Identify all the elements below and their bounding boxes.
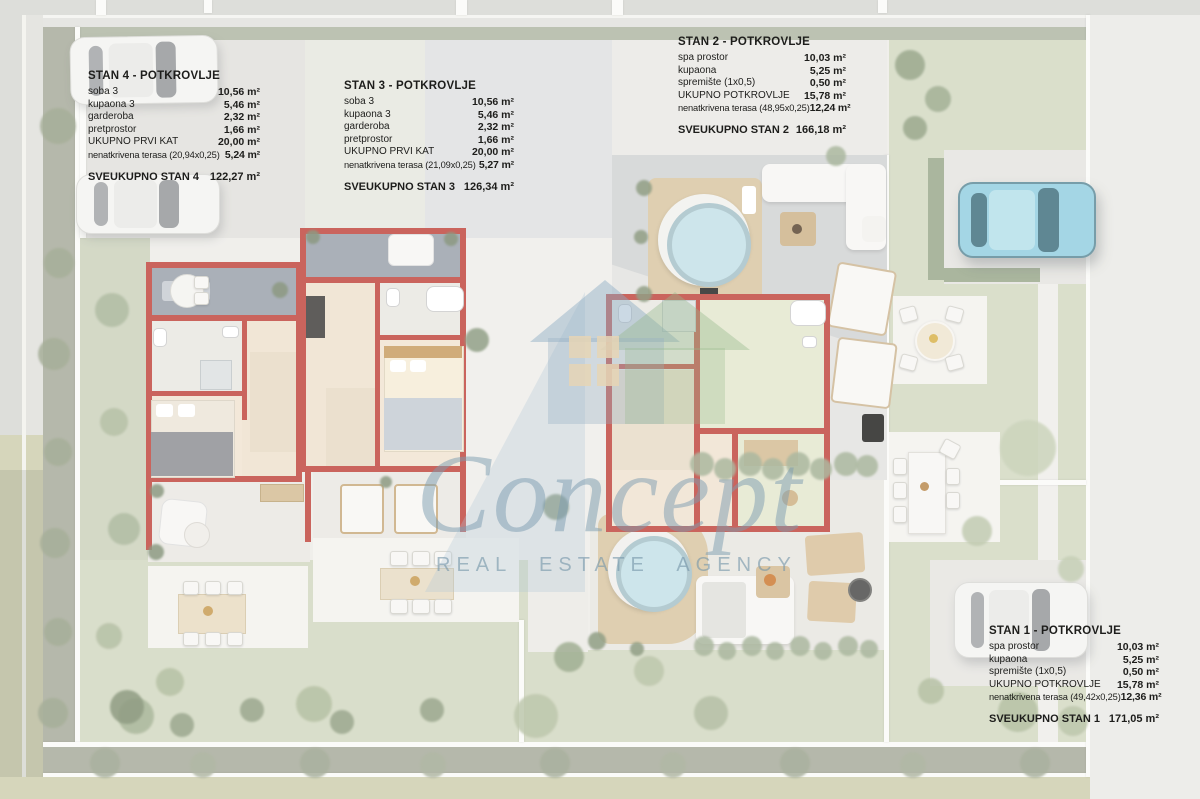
road-left xyxy=(0,15,22,435)
roof-terrace-stan3 xyxy=(300,228,466,282)
table-centerpiece xyxy=(929,334,938,343)
bed-pillow xyxy=(390,360,406,372)
tree xyxy=(40,108,76,144)
fence-post xyxy=(204,0,212,13)
chair xyxy=(434,599,452,614)
tree xyxy=(903,116,927,140)
area-row: kupaona5,25 m² xyxy=(989,654,1159,667)
logo-window xyxy=(569,336,591,358)
staircase-stan4 xyxy=(250,352,302,452)
grass-outside-bottom xyxy=(0,777,1090,799)
sofa-cushions xyxy=(702,582,746,638)
area-total-row: SVEUKUPNO STAN 2166,18 m² xyxy=(678,124,846,136)
tree xyxy=(780,748,810,778)
toilet xyxy=(153,328,167,347)
area-row: nenatkrivena terasa (21,09x0,25)5,27 m² xyxy=(344,159,514,172)
shower xyxy=(200,360,232,390)
hedge-parking-h xyxy=(944,268,1040,282)
tree xyxy=(554,642,584,672)
road-top xyxy=(0,0,1200,15)
area-row: spa prostor10,03 m² xyxy=(678,52,846,65)
bed-blanket xyxy=(151,432,233,476)
chair xyxy=(194,292,209,305)
table-centerpiece xyxy=(920,482,929,491)
tree xyxy=(240,698,264,722)
tree xyxy=(895,50,925,80)
area-row: UKUPNO POTKROVLJE15,78 m² xyxy=(678,90,846,103)
tree xyxy=(742,636,762,656)
tree xyxy=(108,513,140,545)
area-total-row: SVEUKUPNO STAN 1171,05 m² xyxy=(989,713,1159,725)
tree xyxy=(465,328,489,352)
tree xyxy=(96,623,122,649)
unit-table-stan3: STAN 3 - POTKROVLJE soba 310,56 m² kupao… xyxy=(344,80,514,193)
chair xyxy=(194,276,209,289)
area-row: spremište (1x0,5)0,50 m² xyxy=(678,77,846,90)
tree xyxy=(540,748,570,778)
watermark-brand: Concept xyxy=(416,436,803,554)
bed-headboard xyxy=(384,346,462,358)
watermark-subtitle: REAL ESTATE AGENCY xyxy=(436,554,797,577)
tree xyxy=(838,636,858,656)
area-row: UKUPNO PRVI KAT20,00 m² xyxy=(344,146,514,159)
area-row: UKUPNO POTKROVLJE15,78 m² xyxy=(989,679,1159,692)
area-row: pretprostor1,66 m² xyxy=(344,134,514,147)
tree xyxy=(100,408,128,436)
tree xyxy=(190,752,216,778)
tree xyxy=(962,516,992,546)
tree xyxy=(44,618,72,646)
area-row: pretprostor1,66 m² xyxy=(88,124,260,137)
table-centerpiece xyxy=(203,606,213,616)
tree xyxy=(90,748,120,778)
fire-bowl xyxy=(848,578,872,602)
tree xyxy=(148,544,164,560)
logo-body-right xyxy=(625,348,725,424)
area-row: nenatkrivena terasa (20,94x0,25)5,24 m² xyxy=(88,149,260,162)
closet xyxy=(303,296,325,338)
tree xyxy=(444,232,458,246)
sink xyxy=(222,326,239,338)
tree xyxy=(420,698,444,722)
tree xyxy=(826,146,846,166)
tree xyxy=(660,752,686,778)
chair xyxy=(893,506,907,523)
chair xyxy=(412,599,430,614)
tree xyxy=(44,438,72,466)
tree xyxy=(38,698,68,728)
tree xyxy=(790,636,810,656)
unit-table-stan1: STAN 1 - POTKROVLJE spa prostor10,03 m² … xyxy=(989,625,1159,725)
concept-house-logo xyxy=(505,262,785,442)
bathtub xyxy=(790,300,826,326)
tree xyxy=(856,455,878,477)
fence-post xyxy=(612,0,623,15)
tree xyxy=(636,180,652,196)
chair xyxy=(946,468,960,485)
tree xyxy=(1000,420,1056,476)
chair xyxy=(183,581,199,595)
chair xyxy=(205,632,221,646)
towel xyxy=(742,186,756,214)
tree xyxy=(110,690,144,724)
chair xyxy=(390,551,408,566)
logo-window xyxy=(569,364,591,386)
tree xyxy=(694,696,728,730)
tree xyxy=(296,686,332,722)
pouf xyxy=(862,216,886,242)
area-row: nenatkrivena terasa (48,95x0,25)12,24 m² xyxy=(678,102,846,115)
bed-pillow xyxy=(410,360,426,372)
tree xyxy=(718,642,736,660)
bed-pillow xyxy=(156,404,173,417)
tree xyxy=(40,528,70,558)
tree xyxy=(860,640,878,658)
area-row: nenatkrivena terasa (49,42x0,25)12,36 m² xyxy=(989,691,1159,704)
wooden-bench xyxy=(260,484,304,502)
unit-title: STAN 3 - POTKROVLJE xyxy=(344,80,514,92)
table-centerpiece xyxy=(410,576,420,586)
tree xyxy=(420,752,446,778)
area-row: garderoba2,32 m² xyxy=(344,121,514,134)
area-row: soba 310,56 m² xyxy=(88,86,260,99)
unit-table-stan4: STAN 4 - POTKROVLJE soba 310,56 m² kupao… xyxy=(88,70,260,183)
tree xyxy=(330,710,354,734)
tree xyxy=(1020,748,1050,778)
tree xyxy=(1058,556,1084,582)
area-row: kupaona 35,46 m² xyxy=(344,109,514,122)
unit-table-stan2: STAN 2 - POTKROVLJE spa prostor10,03 m² … xyxy=(678,36,846,136)
tree xyxy=(514,694,558,738)
round-table xyxy=(184,522,210,548)
area-row: UKUPNO PRVI KAT20,00 m² xyxy=(88,136,260,149)
area-total-row: SVEUKUPNO STAN 3126,34 m² xyxy=(344,181,514,193)
fence-post xyxy=(878,0,887,13)
unit-title: STAN 2 - POTKROVLJE xyxy=(678,36,846,48)
hedge-parking-v xyxy=(928,158,944,280)
staircase-stan3 xyxy=(326,388,380,472)
fence-post xyxy=(456,0,467,15)
logo-window xyxy=(597,364,619,386)
tree xyxy=(766,642,784,660)
area-row: soba 310,56 m² xyxy=(344,96,514,109)
tree xyxy=(588,632,606,650)
chair xyxy=(893,458,907,475)
tree xyxy=(156,668,184,696)
sun-lounger xyxy=(827,261,898,336)
tree xyxy=(918,678,944,704)
tree xyxy=(814,642,832,660)
bowl xyxy=(792,224,802,234)
tree xyxy=(900,752,926,778)
tree xyxy=(38,338,70,370)
sun-lounger xyxy=(830,337,898,410)
dining-table xyxy=(908,452,946,534)
bathtub xyxy=(426,286,464,312)
chair xyxy=(227,632,243,646)
logo-window xyxy=(597,336,619,358)
chair xyxy=(227,581,243,595)
tree xyxy=(630,642,644,656)
chair xyxy=(946,492,960,509)
armchair xyxy=(388,234,434,266)
unit-title: STAN 4 - POTKROVLJE xyxy=(88,70,260,82)
area-row: kupaona5,25 m² xyxy=(678,65,846,78)
tree xyxy=(170,713,194,737)
tree xyxy=(925,86,951,112)
bed-pillow xyxy=(178,404,195,417)
car-white xyxy=(76,174,220,234)
wood-chair xyxy=(805,532,866,576)
tree xyxy=(44,248,74,278)
chair xyxy=(205,581,221,595)
area-row: kupaona 35,46 m² xyxy=(88,99,260,112)
area-row: spa prostor10,03 m² xyxy=(989,641,1159,654)
grill xyxy=(862,414,884,442)
sun-lounger xyxy=(340,484,384,534)
sink xyxy=(802,336,817,348)
chair xyxy=(183,632,199,646)
tree xyxy=(272,282,288,298)
sidewalk-left xyxy=(26,15,43,435)
unit-title: STAN 1 - POTKROVLJE xyxy=(989,625,1159,637)
toilet xyxy=(386,288,400,307)
area-row: garderoba2,32 m² xyxy=(88,111,260,124)
car-blue xyxy=(958,182,1096,258)
tree xyxy=(694,636,714,656)
tree xyxy=(634,656,664,686)
tree xyxy=(634,230,648,244)
chair xyxy=(893,482,907,499)
area-total-row: SVEUKUPNO STAN 4122,27 m² xyxy=(88,171,260,183)
shadow-outside xyxy=(0,470,46,799)
tree xyxy=(834,452,858,476)
tree xyxy=(380,476,392,488)
tree xyxy=(150,484,164,498)
site-plan-render: Concept REAL ESTATE AGENCY STAN 4 - POTK… xyxy=(0,0,1200,799)
fence-post xyxy=(96,0,106,15)
tree xyxy=(300,748,330,778)
tree xyxy=(95,293,129,327)
tree xyxy=(810,458,832,480)
tree xyxy=(306,230,320,244)
area-row: spremište (1x0,5)0,50 m² xyxy=(989,666,1159,679)
chair xyxy=(390,599,408,614)
